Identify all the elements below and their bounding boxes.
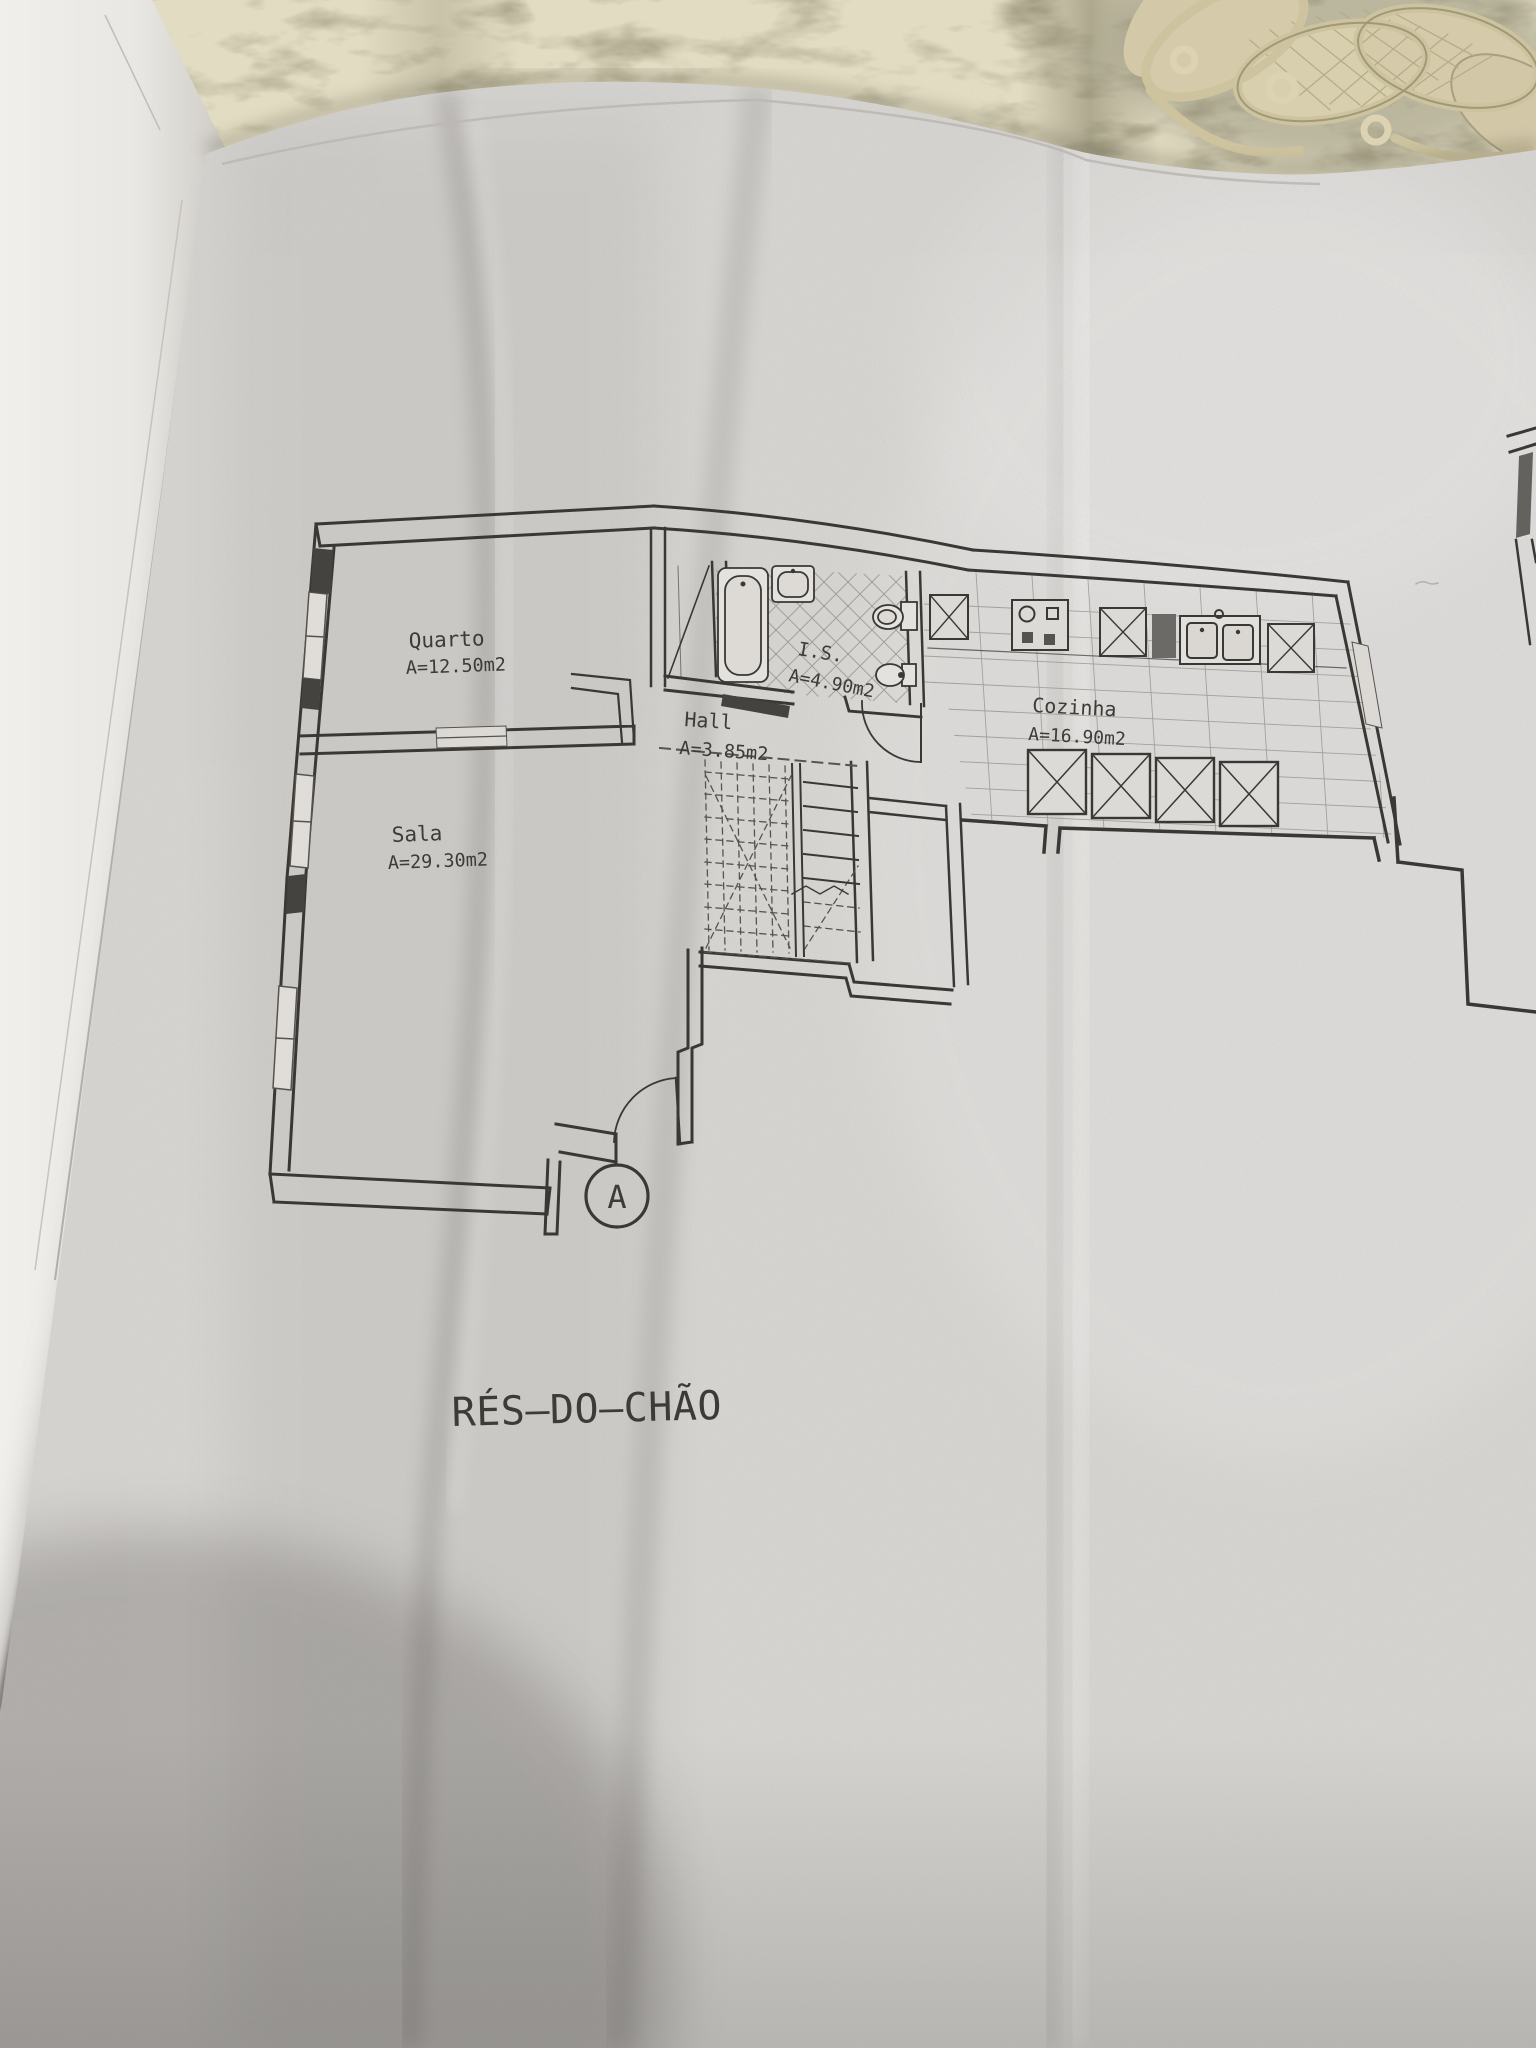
room-label-quarto: Quarto	[408, 626, 485, 653]
room-label-sala: Sala	[391, 821, 442, 847]
kitchen-sink-icon	[1180, 610, 1260, 664]
plan-title: RÉS—DO—CHÃO	[451, 1381, 723, 1436]
section-marker-letter: A	[607, 1178, 626, 1216]
bathtub-icon	[718, 568, 768, 682]
plan-sheet-page	[0, 0, 1536, 2048]
room-area-sala: A=29.30m2	[387, 850, 488, 874]
bidet-icon	[876, 664, 916, 686]
scene-svg: Quarto A=12.50m2 I.S. A=4.90m2 Hall A=3.…	[0, 0, 1536, 2048]
room-label-cozinha: Cozinha	[1032, 693, 1117, 721]
window-midline	[306, 636, 324, 637]
room-label-hall: Hall	[684, 707, 734, 734]
cabinet-x-box	[1100, 608, 1146, 656]
page-shading	[0, 0, 1536, 2048]
window-midline	[293, 821, 311, 822]
cabinet-x-box	[930, 595, 968, 639]
photo-of-floor-plan-book: Quarto A=12.50m2 I.S. A=4.90m2 Hall A=3.…	[0, 0, 1536, 2048]
counter-dark-unit	[1152, 614, 1176, 658]
cabinet-x-box	[1268, 624, 1314, 672]
washbasin-icon	[772, 566, 814, 602]
window-midline	[276, 1038, 294, 1039]
stove-icon	[1012, 600, 1068, 650]
room-area-quarto: A=12.50m2	[405, 655, 506, 679]
toilet-icon	[873, 602, 917, 630]
